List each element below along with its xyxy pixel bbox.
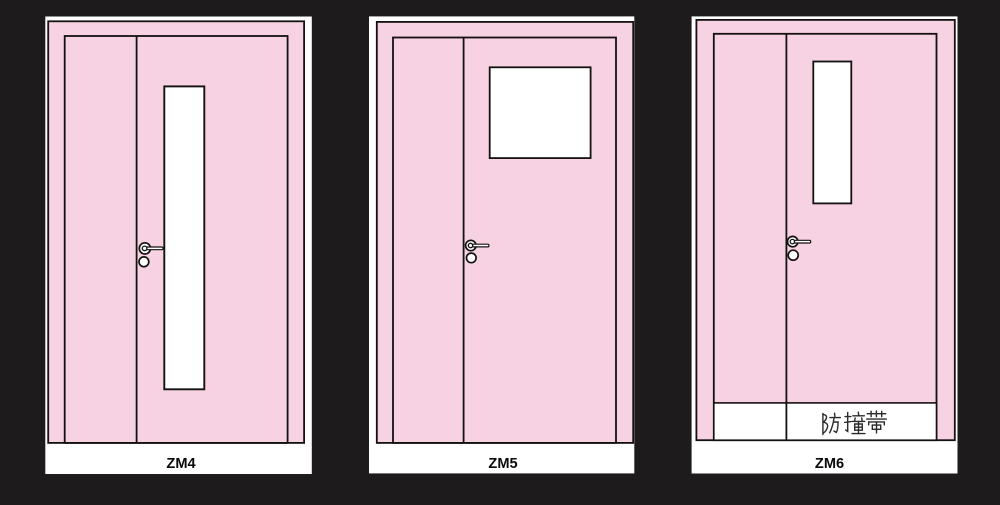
svg-text:ZM4: ZM4 [166,456,196,472]
svg-text:ZM5: ZM5 [488,456,517,472]
svg-text:ZM6: ZM6 [815,456,844,472]
